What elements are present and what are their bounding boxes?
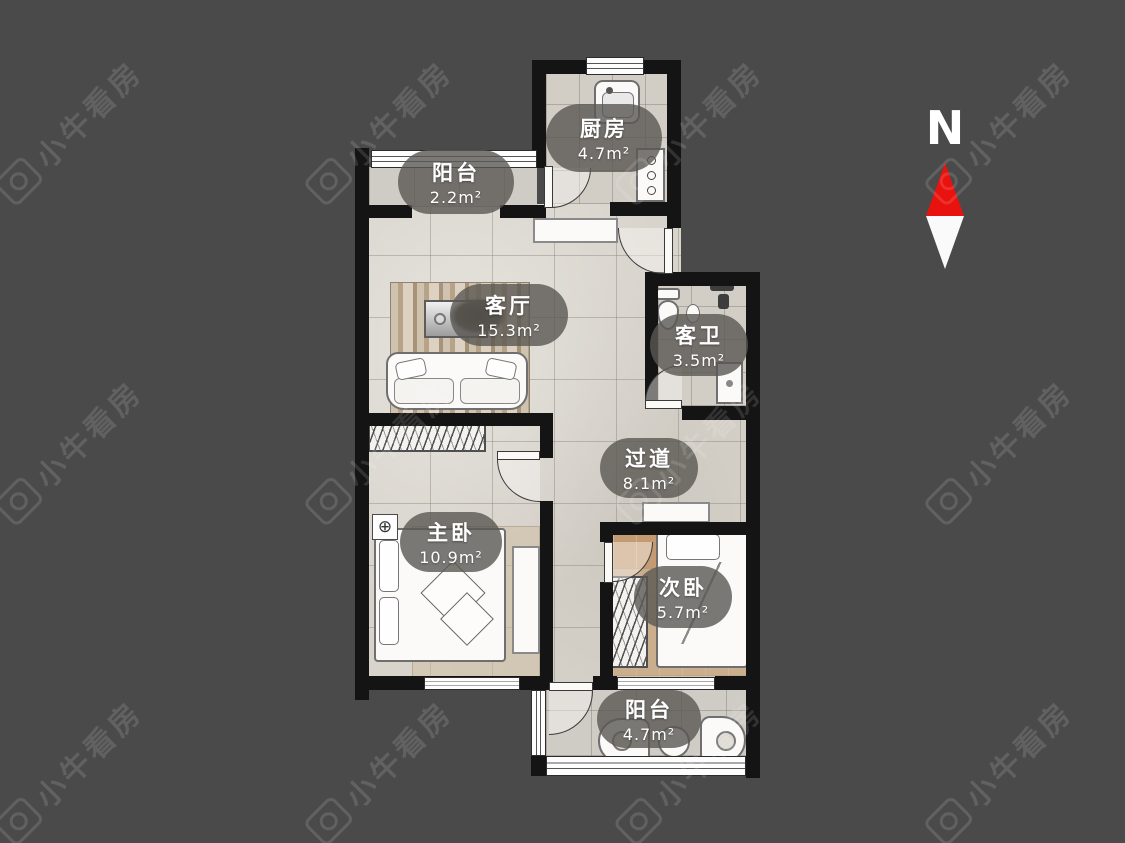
- wall: [600, 522, 760, 535]
- watermark-logo-icon: [0, 795, 45, 843]
- pillow: [379, 540, 399, 592]
- room-area: 3.5m²: [673, 351, 725, 370]
- master-door-leaf: [497, 451, 540, 460]
- watermark: 小牛看房: [299, 689, 461, 843]
- wall: [600, 535, 613, 542]
- room-area: 4.7m²: [623, 725, 675, 744]
- north-label: N: [906, 105, 984, 151]
- room-label-living: 客厅 15.3m²: [450, 284, 568, 346]
- room-area: 15.3m²: [477, 321, 541, 340]
- wall: [532, 676, 549, 690]
- watermark-logo-icon: [923, 795, 975, 843]
- room-area: 5.7m²: [657, 603, 709, 622]
- crosshair-icon: ⊕: [372, 514, 398, 540]
- room-label-balcony-top: 阳台 2.2m²: [398, 150, 514, 214]
- bathroom-door-leaf: [645, 400, 682, 409]
- wall: [682, 406, 746, 420]
- room-area: 8.1m²: [623, 474, 675, 493]
- watermark-text: 小牛看房: [24, 369, 151, 496]
- wall: [715, 676, 746, 690]
- second-bedroom-door-leaf: [604, 542, 613, 583]
- window: [531, 690, 546, 756]
- room-name: 主卧: [427, 517, 475, 547]
- room-area: 10.9m²: [419, 548, 483, 567]
- bedside-table: [512, 546, 540, 654]
- sofa: [386, 352, 528, 410]
- watermark: 小牛看房: [0, 49, 151, 211]
- north-arrow-icon: [926, 163, 964, 216]
- shoe-cabinet: [533, 218, 618, 243]
- room-name: 次卧: [659, 572, 707, 602]
- outside-area: [681, 204, 746, 274]
- compass-north-indicator: N: [906, 105, 984, 269]
- pillow: [379, 597, 399, 645]
- watermark: 小牛看房: [0, 369, 151, 531]
- south-arrow-icon: [926, 216, 964, 269]
- watermark: 小牛看房: [0, 689, 151, 843]
- wall: [531, 756, 546, 776]
- wall: [540, 413, 553, 458]
- room-label-hallway: 过道 8.1m²: [600, 438, 698, 498]
- watermark-logo-icon: [303, 795, 355, 843]
- room-name: 阳台: [625, 694, 673, 724]
- watermark-text: 小牛看房: [334, 689, 461, 816]
- wall: [600, 582, 613, 676]
- watermark-text: 小牛看房: [954, 689, 1081, 816]
- watermark-logo-icon: [613, 795, 665, 843]
- room-label-bathroom: 客卫 3.5m²: [650, 314, 748, 376]
- pillow: [666, 534, 720, 560]
- watermark: 小牛看房: [919, 369, 1081, 531]
- room-name: 阳台: [432, 157, 480, 187]
- shower-head-icon: [718, 294, 729, 309]
- hallway-cabinet: [642, 502, 710, 523]
- kitchen-door-leaf: [544, 166, 553, 208]
- window: [586, 57, 644, 75]
- wall: [645, 272, 760, 286]
- room-name: 厨房: [580, 113, 628, 143]
- wall: [610, 202, 681, 216]
- room-name: 客卫: [675, 320, 723, 350]
- watermark-logo-icon: [303, 155, 355, 207]
- window: [546, 756, 746, 776]
- room-label-kitchen: 厨房 4.7m²: [546, 104, 662, 172]
- room-name: 过道: [625, 443, 673, 473]
- watermark-text: 小牛看房: [24, 689, 151, 816]
- watermark-text: 小牛看房: [24, 49, 151, 176]
- wall: [540, 501, 553, 690]
- window: [617, 677, 715, 690]
- watermark-text: 小牛看房: [954, 369, 1081, 496]
- balcony-door-leaf: [549, 682, 593, 691]
- entry-door-leaf: [664, 228, 673, 274]
- watermark-logo-icon: [303, 475, 355, 527]
- wall: [500, 205, 546, 218]
- watermark-logo-icon: [923, 475, 975, 527]
- room-label-master: 主卧 10.9m²: [400, 512, 502, 572]
- watermark-logo-icon: [0, 155, 45, 207]
- room-name: 客厅: [485, 290, 533, 320]
- room-label-second-bedroom: 次卧 5.7m²: [634, 566, 732, 628]
- room-area: 2.2m²: [430, 188, 482, 207]
- wall: [355, 205, 412, 218]
- room-label-balcony-bottom: 阳台 4.7m²: [597, 690, 701, 748]
- wall: [593, 676, 617, 690]
- watermark: 小牛看房: [919, 689, 1081, 843]
- room-area: 4.7m²: [578, 144, 630, 163]
- floorplan-screenshot: ⊕: [0, 0, 1125, 843]
- window: [424, 677, 520, 690]
- wall: [355, 413, 545, 426]
- watermark-logo-icon: [0, 475, 45, 527]
- toilet-tank: [656, 288, 680, 300]
